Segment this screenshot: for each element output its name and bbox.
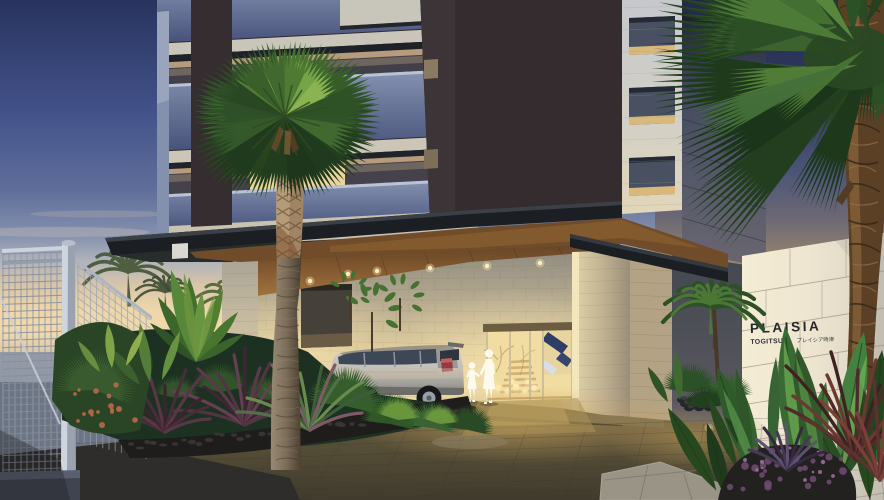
svg-text:プレイシア時津: プレイシア時津 [796,336,835,344]
svg-text:TOGITSU: TOGITSU [750,338,783,346]
